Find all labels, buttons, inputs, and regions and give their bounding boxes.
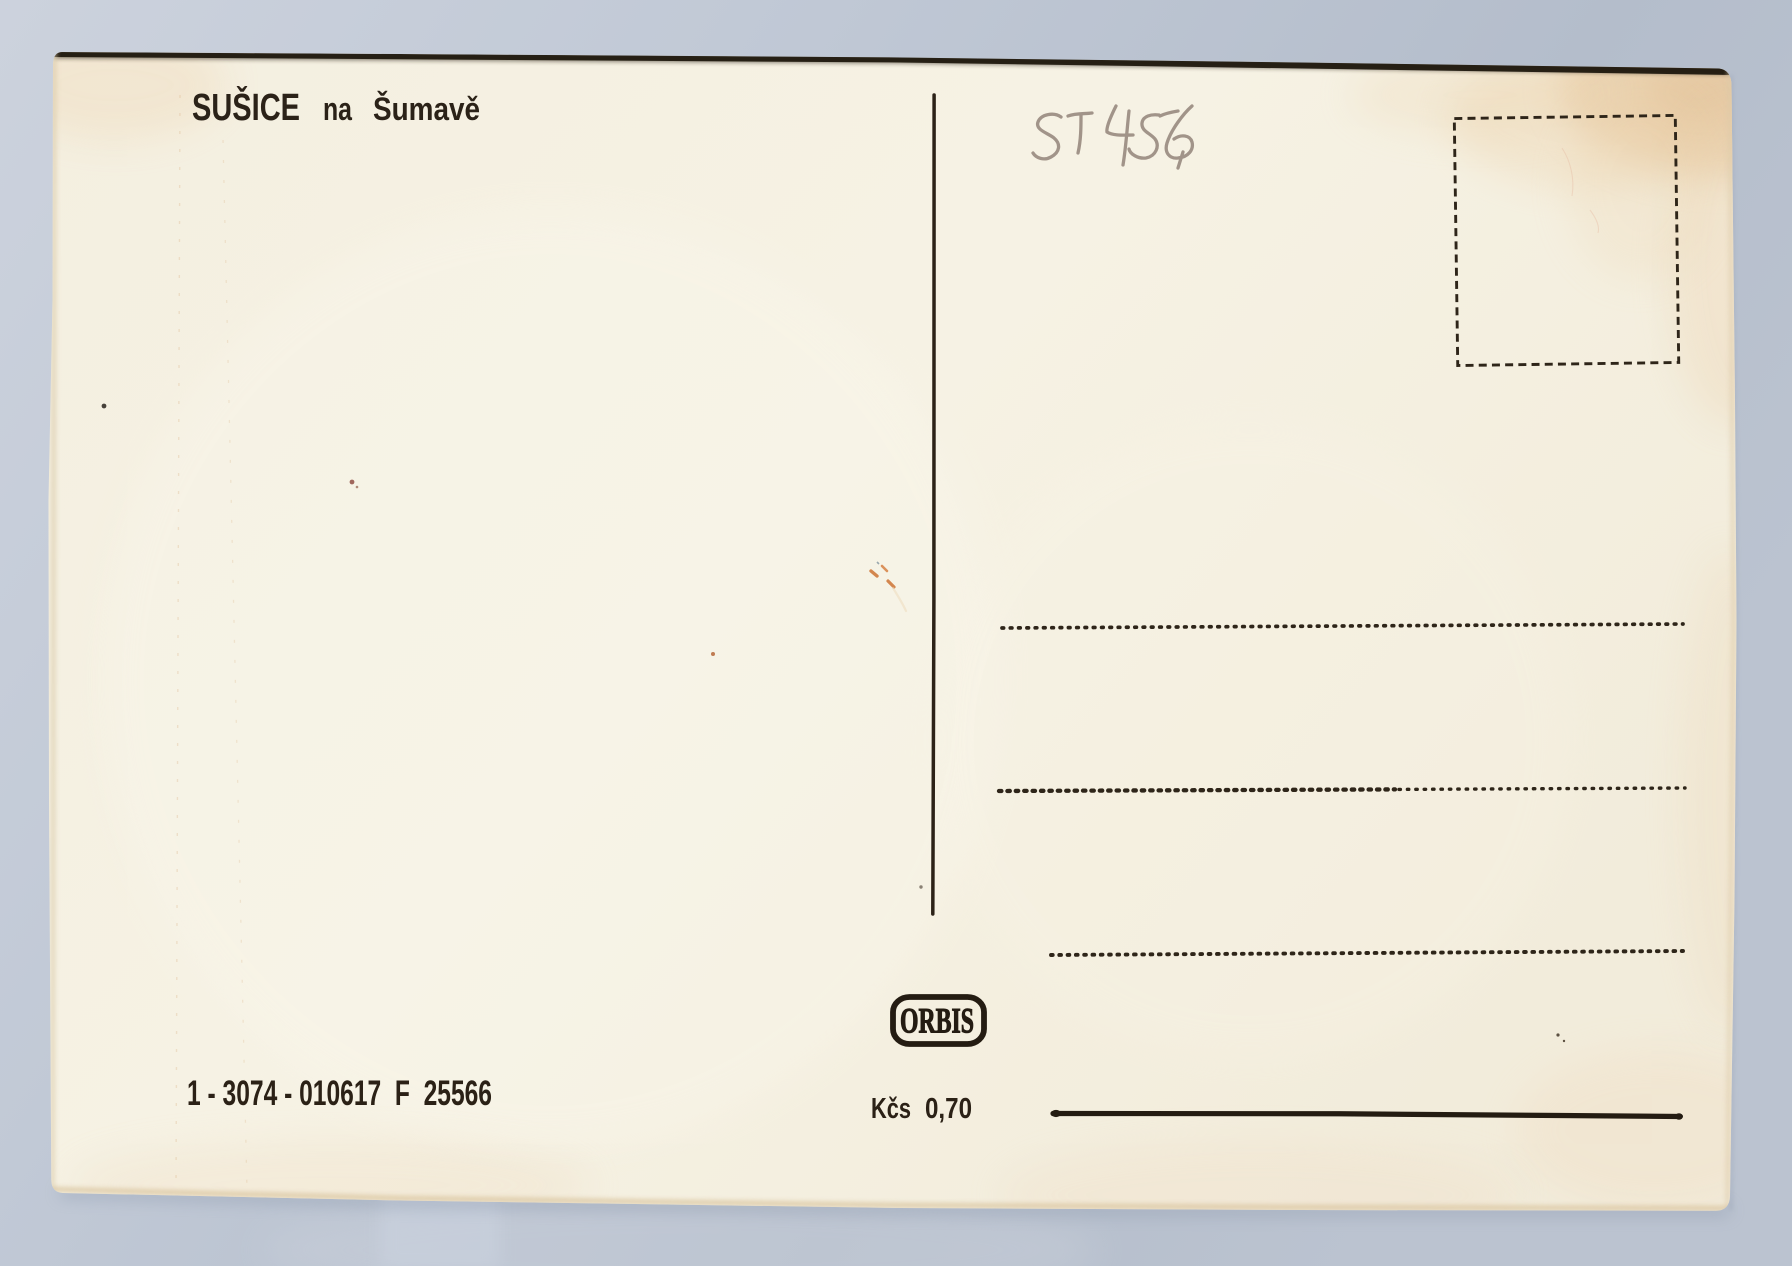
- svg-text:0,70: 0,70: [925, 1093, 972, 1125]
- svg-text:1 - 3074 - 010617 F 25566: 1 - 3074 - 010617 F 25566: [187, 1074, 492, 1113]
- svg-text:Kčs: Kčs: [871, 1093, 911, 1125]
- svg-text:na: na: [323, 91, 352, 127]
- svg-text:SUŠICE: SUŠICE: [192, 84, 300, 129]
- svg-text:ORBIS: ORBIS: [900, 1001, 974, 1041]
- svg-text:Šumavě: Šumavě: [373, 91, 480, 127]
